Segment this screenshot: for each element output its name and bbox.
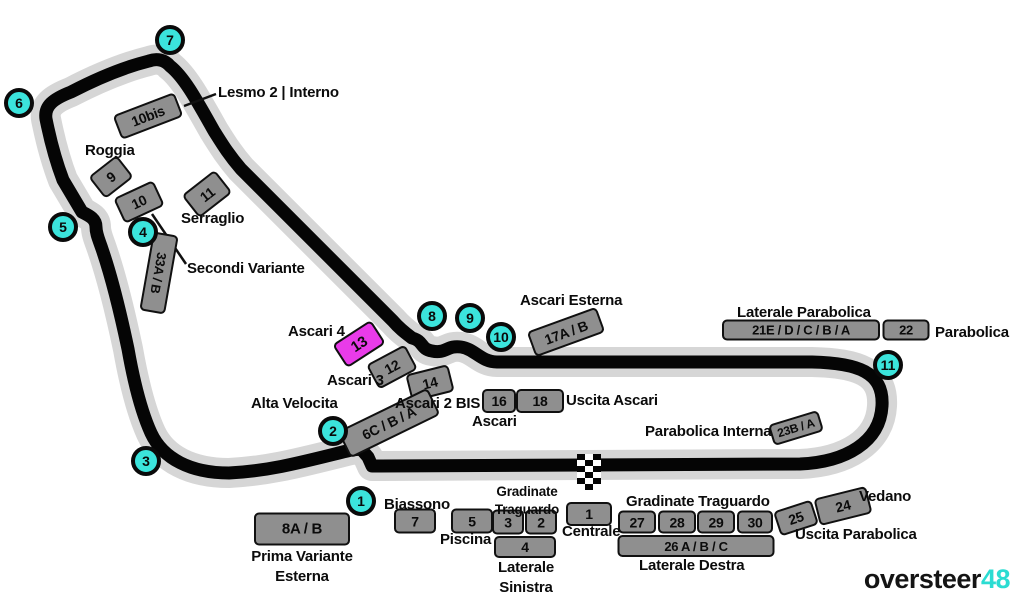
finish-cell bbox=[585, 472, 593, 478]
finish-cell bbox=[577, 460, 585, 466]
finish-cell bbox=[593, 478, 601, 484]
finish-line-checker bbox=[577, 454, 601, 490]
finish-cell bbox=[593, 466, 601, 472]
finish-cell bbox=[593, 472, 601, 478]
finish-cell bbox=[577, 484, 585, 490]
finish-cell bbox=[593, 484, 601, 490]
track-halo bbox=[46, 60, 882, 473]
finish-cell bbox=[577, 478, 585, 484]
finish-cell bbox=[577, 472, 585, 478]
finish-cell bbox=[585, 484, 593, 490]
finish-cell bbox=[585, 478, 593, 484]
leader-line-secondi-variante bbox=[152, 214, 186, 264]
finish-cell bbox=[577, 454, 585, 460]
oversteer48-logo: oversteer48 bbox=[864, 564, 1010, 595]
finish-cell bbox=[585, 466, 593, 472]
track-road bbox=[46, 60, 882, 473]
finish-cell bbox=[585, 460, 593, 466]
finish-cell bbox=[593, 460, 601, 466]
logo-number: 48 bbox=[981, 564, 1010, 594]
logo-text: oversteer bbox=[864, 564, 981, 594]
finish-cell bbox=[577, 466, 585, 472]
finish-cell bbox=[585, 454, 593, 460]
track-map-svg bbox=[0, 0, 1024, 604]
monza-circuit-map: 10bis9101133A / B1312146C / B / A161817A… bbox=[0, 0, 1024, 604]
finish-cell bbox=[593, 454, 601, 460]
